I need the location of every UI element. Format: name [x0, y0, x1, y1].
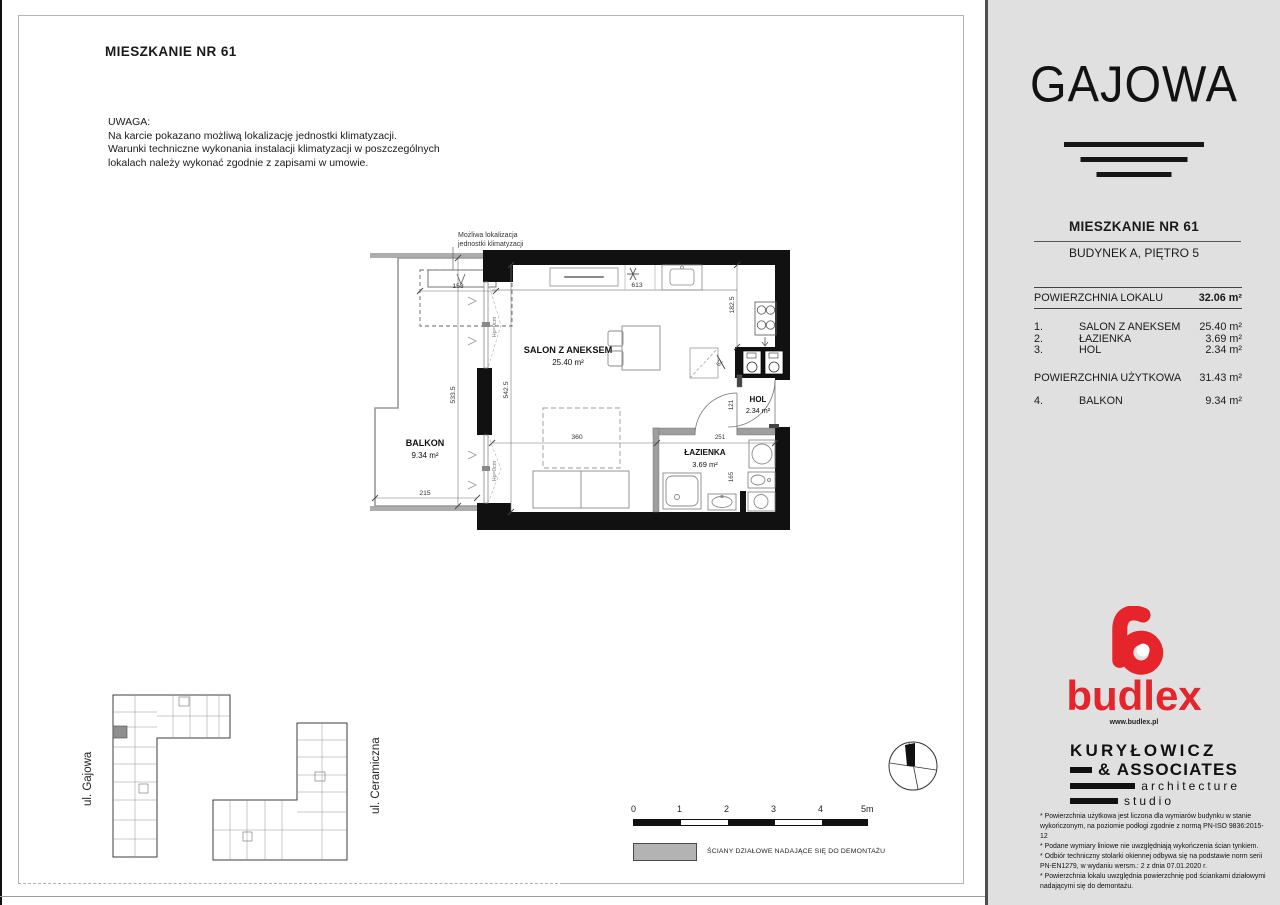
gajowa-logo-line [1064, 142, 1204, 147]
dim-bath-niche: 165 [728, 471, 735, 482]
washing-machine [749, 440, 775, 468]
scale-tick: 2 [724, 804, 729, 814]
balkon-area: 9.34 m² [411, 451, 438, 460]
ac-note: UWAGA: Na karcie pokazano możliwą lokali… [108, 116, 440, 170]
budlex-url: www.budlex.pl [988, 719, 1280, 726]
scale-bar-segments [633, 819, 868, 826]
ac-note-heading: UWAGA: [108, 116, 440, 130]
room-area: 2.34 m² [1205, 345, 1242, 357]
architect-name-line1: KURYŁOWICZ [1070, 742, 1240, 759]
dim-balcony-length: 533.5 [450, 386, 457, 403]
footnote: * Powierzchnia użytkowa jest liczona dla… [1040, 812, 1270, 842]
scale-tick: 0 [631, 804, 636, 814]
room-area: 25.40 m² [1199, 322, 1242, 334]
drawing-frame-bottom-solid [563, 883, 963, 884]
scale-tick: 3 [771, 804, 776, 814]
window-parapet-note-2: Hp=0cm [492, 460, 498, 481]
ac-note-line: Warunki techniczne wykonania instalacji … [108, 143, 440, 157]
site-building-left [113, 695, 230, 857]
salon-label: SALON Z ANEKSEM [524, 345, 613, 355]
bathroom-door [695, 393, 737, 435]
dim-bath-width: 251 [715, 434, 726, 441]
site-plan [95, 672, 395, 887]
fridge-snowflake-icon [627, 268, 639, 280]
floor-plan: Możliwa lokalizacja jednostki klimatyzac… [365, 225, 805, 540]
street-label-gajowa: ul. Gajowa [82, 752, 94, 806]
lazienka-label: ŁAZIENKA [684, 448, 725, 457]
gajowa-logo: GAJOWA [988, 58, 1280, 109]
architect-logo-bar [1070, 798, 1118, 804]
sidebar-building-floor: BUDYNEK A, PIĘTRO 5 [988, 246, 1280, 260]
footnote: * Odbiór techniczny stolarki okiennej od… [1040, 852, 1270, 872]
dining-table [608, 326, 660, 370]
site-plan-unit-highlight [113, 726, 127, 738]
site-building-right [213, 723, 347, 860]
scale-tick: 5m [861, 804, 874, 814]
footnotes: * Powierzchnia użytkowa jest liczona dla… [1040, 812, 1270, 892]
hol-area: 2.34 m² [746, 406, 771, 415]
sidebar: GAJOWA MIESZKANIE NR 61 BUDYNEK A, PIĘTR… [985, 0, 1280, 905]
window-parapet-note-1: Hp=0cm [492, 316, 498, 337]
room-no: 1. [1034, 322, 1079, 334]
balcony-area-row: 4. BALKON 9.34 m² [1034, 396, 1242, 408]
structural-walls [477, 250, 790, 530]
scale-tick: 1 [677, 804, 682, 814]
dim-kitchen-run: 613 [631, 282, 643, 289]
ac-note-line: lokalach należy wykonać zgodnie z zapisa… [108, 157, 440, 171]
kitchen-counter [492, 265, 737, 290]
usable-area-row: POWIERZCHNIA UŻYTKOWA 31.43 m² [1034, 372, 1242, 384]
salon-area: 25.40 m² [552, 358, 584, 367]
legend-demountable-label: ŚCIANY DZIAŁOWE NADAJĄCE SIĘ DO DEMONTAŻ… [707, 848, 885, 855]
dim-salon-width: 360 [571, 434, 583, 441]
page-title: MIESZKANIE NR 61 [105, 44, 237, 59]
total-area-value: 32.06 m² [1199, 292, 1242, 304]
gajowa-logo-line [1081, 157, 1188, 162]
room-area: 9.34 m² [1205, 396, 1242, 408]
dim-kitchen-depth: 182.5 [729, 296, 736, 313]
divider [1034, 241, 1241, 242]
architect-logo-bar [1070, 767, 1092, 773]
dim-ac-width: 158 [452, 283, 464, 290]
room-no: 4. [1034, 396, 1079, 408]
budlex-logo-icon [988, 606, 1280, 681]
total-area-label: POWIERZCHNIA LOKALU [1034, 292, 1163, 304]
footnote: * Podane wymiary liniowe nie uwzględniaj… [1040, 842, 1270, 852]
gajowa-logo-line [1097, 172, 1172, 177]
usable-area-label: POWIERZCHNIA UŻYTKOWA [1034, 372, 1181, 384]
ac-note-line: Na karcie pokazano możliwą lokalizację j… [108, 130, 440, 144]
toilet [748, 472, 775, 488]
footnote: * Powierzchnia lokalu uwzględnia powierz… [1040, 872, 1270, 892]
balkon-label: BALKON [406, 438, 445, 448]
shower [663, 473, 701, 509]
architect-logo-bar [1070, 783, 1135, 789]
room-name: BALKON [1079, 396, 1123, 408]
area-summary-header: POWIERZCHNIA LOKALU 32.06 m² [1034, 287, 1242, 309]
dim-balcony-width: 215 [419, 490, 431, 497]
budlex-logo-text: budlex [988, 672, 1280, 720]
north-compass-icon [885, 738, 941, 794]
dimension-labels: 158 215 533.5 542.5 360 613 182.5 62 121… [419, 282, 736, 497]
sidebar-apartment-title: MIESZKANIE NR 61 [988, 219, 1280, 234]
ac-label-line2: jednostki klimatyzacji [457, 241, 524, 248]
scale-bar: 0 1 2 3 4 5m [633, 804, 873, 838]
dim-salon-length: 542.5 [503, 381, 510, 398]
page-left-edge [0, 0, 2, 905]
installation-shaft [690, 347, 790, 378]
room-row: 1. SALON Z ANEKSEM 25.40 m² [1034, 322, 1242, 334]
room-name: HOL [1079, 345, 1101, 357]
ac-label-line1: Możliwa lokalizacja [458, 232, 518, 239]
room-no: 3. [1034, 345, 1079, 357]
street-label-ceramiczna: ul. Ceramiczna [370, 737, 382, 814]
hob [755, 302, 776, 346]
room-name: SALON Z ANEKSEM [1079, 322, 1180, 334]
scale-tick: 4 [818, 804, 823, 814]
architect-logo: KURYŁOWICZ & ASSOCIATES architecture stu… [1070, 742, 1240, 807]
architect-architecture-label: architecture [1141, 780, 1240, 792]
dim-hol-width: 121 [728, 399, 735, 410]
room-row: 3. HOL 2.34 m² [1034, 345, 1242, 357]
legend-demountable-swatch [633, 843, 697, 861]
balcony-slabs [370, 253, 483, 511]
balcony-outline [375, 258, 483, 506]
dimension-lines [372, 255, 778, 515]
lazienka-area: 3.69 m² [692, 460, 718, 469]
sofa [533, 471, 629, 508]
architect-name-line2: & ASSOCIATES [1098, 762, 1238, 777]
usable-area-value: 31.43 m² [1199, 372, 1242, 384]
washer-niche [740, 491, 775, 512]
page-bottom-edge [0, 896, 985, 897]
hol-label: HOL [750, 395, 767, 404]
room-area-table: 1. SALON Z ANEKSEM 25.40 m² 2. ŁAZIENKA … [1034, 322, 1242, 357]
entrance-door [728, 380, 779, 428]
architect-studio-label: studio [1124, 795, 1174, 807]
washbasin [708, 494, 736, 510]
